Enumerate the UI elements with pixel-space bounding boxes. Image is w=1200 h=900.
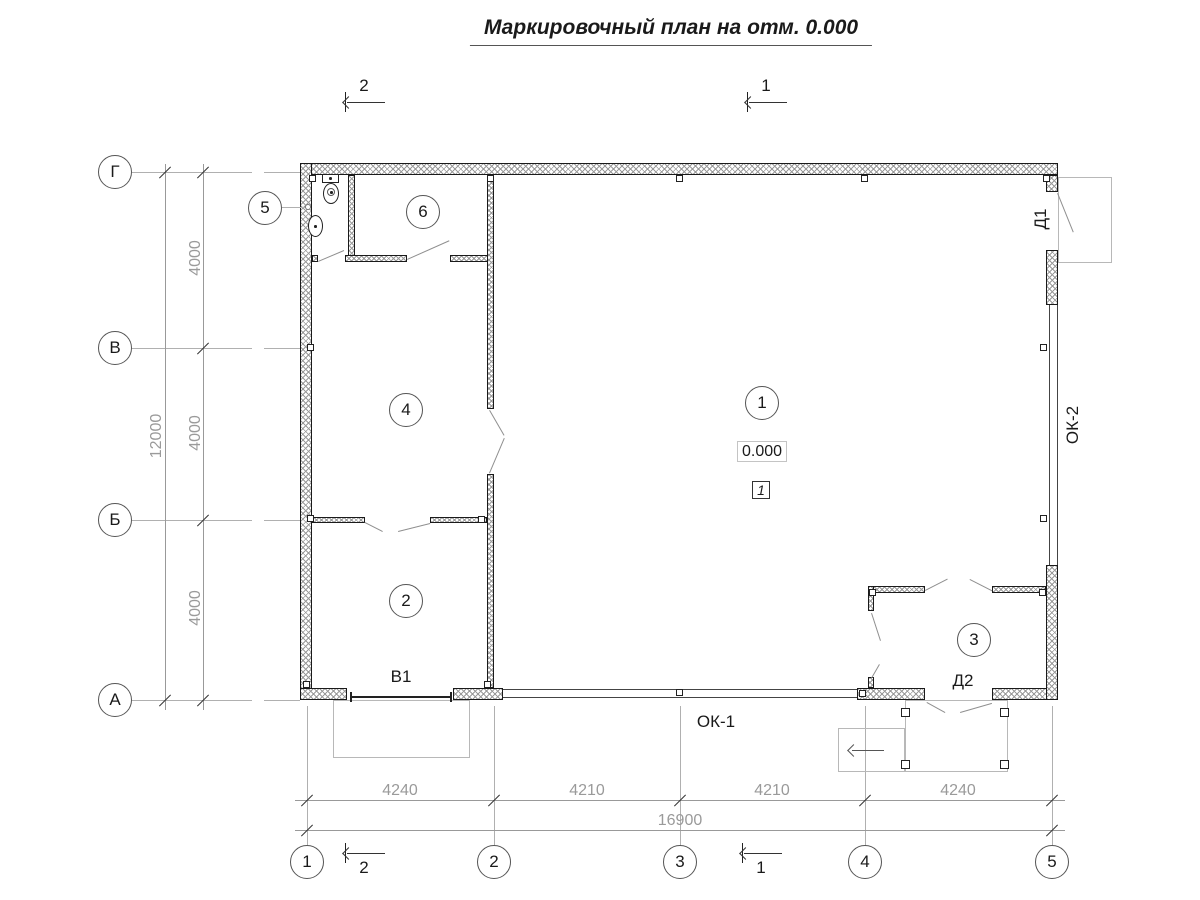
zone-mark: 1 [752,481,770,499]
grid-line-row-a [132,700,252,701]
wall-partition [345,255,407,262]
grid-line-row-g [132,172,252,173]
wall-partition [487,175,494,409]
dim-value: 4000 [187,415,205,451]
wall-exterior-left [300,163,312,700]
section-label: 1 [756,858,765,878]
section-label: 2 [359,858,368,878]
grid-line-row-v [132,348,252,349]
grid-bubble-row-g: Г [98,155,132,189]
wall-exterior-bottom [453,688,503,700]
grid-bubble-col-5: 5 [1035,845,1069,879]
grid-line-row-g [264,172,300,173]
column-marker [1043,175,1050,182]
column-marker [869,589,876,596]
room-number-4: 4 [389,393,423,427]
grid-line-row-v [264,348,300,349]
floor-plan-drawing: Маркировочный план на отм. 0.000 4240 42… [0,0,1200,900]
wall-partition [868,677,874,688]
porch-outline [1058,177,1112,263]
column-marker [478,516,485,523]
door-leaf [398,523,430,532]
grid-line-row-b [132,520,252,521]
wall-partition [348,175,355,262]
grid-bubble-row-b: Б [98,503,132,537]
door-leaf [489,410,504,436]
door-leaf [489,438,505,473]
grid-line-row-a [264,700,300,701]
grid-bubble-col-2: 2 [477,845,511,879]
door-leaf [925,579,948,591]
wall-partition [312,517,365,523]
wall-partition [868,586,925,593]
column-marker [861,175,868,182]
door-leaf [318,250,344,262]
window-ok2 [1049,305,1058,565]
grid-line-col-5 [1052,706,1053,846]
door-leaf [871,664,880,678]
room-number-1: 1 [745,386,779,420]
gate-b1-leaf [350,696,452,698]
column-marker [676,689,683,696]
column-marker [1040,344,1047,351]
grid-bubble-col-4: 4 [848,845,882,879]
section-label: 1 [761,76,770,96]
wall-exterior-bottom [857,688,925,700]
sink-dot-icon [314,225,317,228]
door-d2-label: Д2 [953,671,974,691]
wall-partition [992,586,1046,593]
door-d1-label: Д1 [1031,209,1051,230]
room-number-2: 2 [389,584,423,618]
gate-b1-jamb [450,692,452,702]
dim-value: 4240 [940,782,976,800]
wall-exterior-right [1046,565,1058,700]
room-number-6: 6 [406,195,440,229]
column-marker [859,690,866,697]
dim-total-value: 12000 [148,414,166,459]
column-marker [676,175,683,182]
dimension-line-bottom-total [295,830,1065,831]
grid-line-row-b [264,520,300,521]
dim-value: 4000 [187,240,205,276]
grid-bubble-row-a: А [98,683,132,717]
porch-post [901,760,910,769]
window-ok2-label: ОК-2 [1063,406,1083,444]
grid-line-col-2 [494,706,495,846]
column-marker [303,681,310,688]
column-marker [484,681,491,688]
wall-partition [487,474,494,688]
wall-exterior-right [1046,250,1058,305]
dim-value: 4240 [382,782,418,800]
room-number-5: 5 [248,191,282,225]
column-marker [1040,515,1047,522]
door-leaf [407,240,449,260]
gate-label: В1 [391,667,412,687]
dim-total-value: 16900 [658,812,703,830]
door-leaf [970,579,993,591]
column-marker [307,344,314,351]
wall-exterior-bottom [300,688,347,700]
porch-post [1000,760,1009,769]
drawing-title: Маркировочный план на отм. 0.000 [470,16,872,46]
dim-value: 4210 [754,782,790,800]
leader-end-icon [305,204,311,210]
dim-value: 4210 [569,782,605,800]
porch-outline [333,700,470,758]
wall-exterior-top [300,163,1058,175]
grid-line-col-1 [307,706,308,846]
toilet-tank-dot-icon [329,177,332,180]
window-ok1-label: ОК-1 [697,712,735,732]
grid-bubble-row-v: В [98,331,132,365]
grid-bubble-col-1: 1 [290,845,324,879]
porch-post [901,708,910,717]
grid-line-col-4 [865,706,866,846]
section-label: 2 [359,76,368,96]
column-marker [307,515,314,522]
dim-value: 4000 [187,590,205,626]
door-leaf [365,522,383,532]
grid-bubble-col-3: 3 [663,845,697,879]
porch-post [1000,708,1009,717]
column-marker [309,175,316,182]
toilet-bowl-dot-icon [330,191,333,194]
door-leaf [871,613,881,641]
elevation-mark: 0.000 [737,441,787,462]
porch-outline [905,700,1008,772]
column-marker [487,175,494,182]
gate-b1-jamb [350,692,352,702]
room-number-3: 3 [957,623,991,657]
leader-line [282,207,306,208]
column-marker [1039,589,1046,596]
